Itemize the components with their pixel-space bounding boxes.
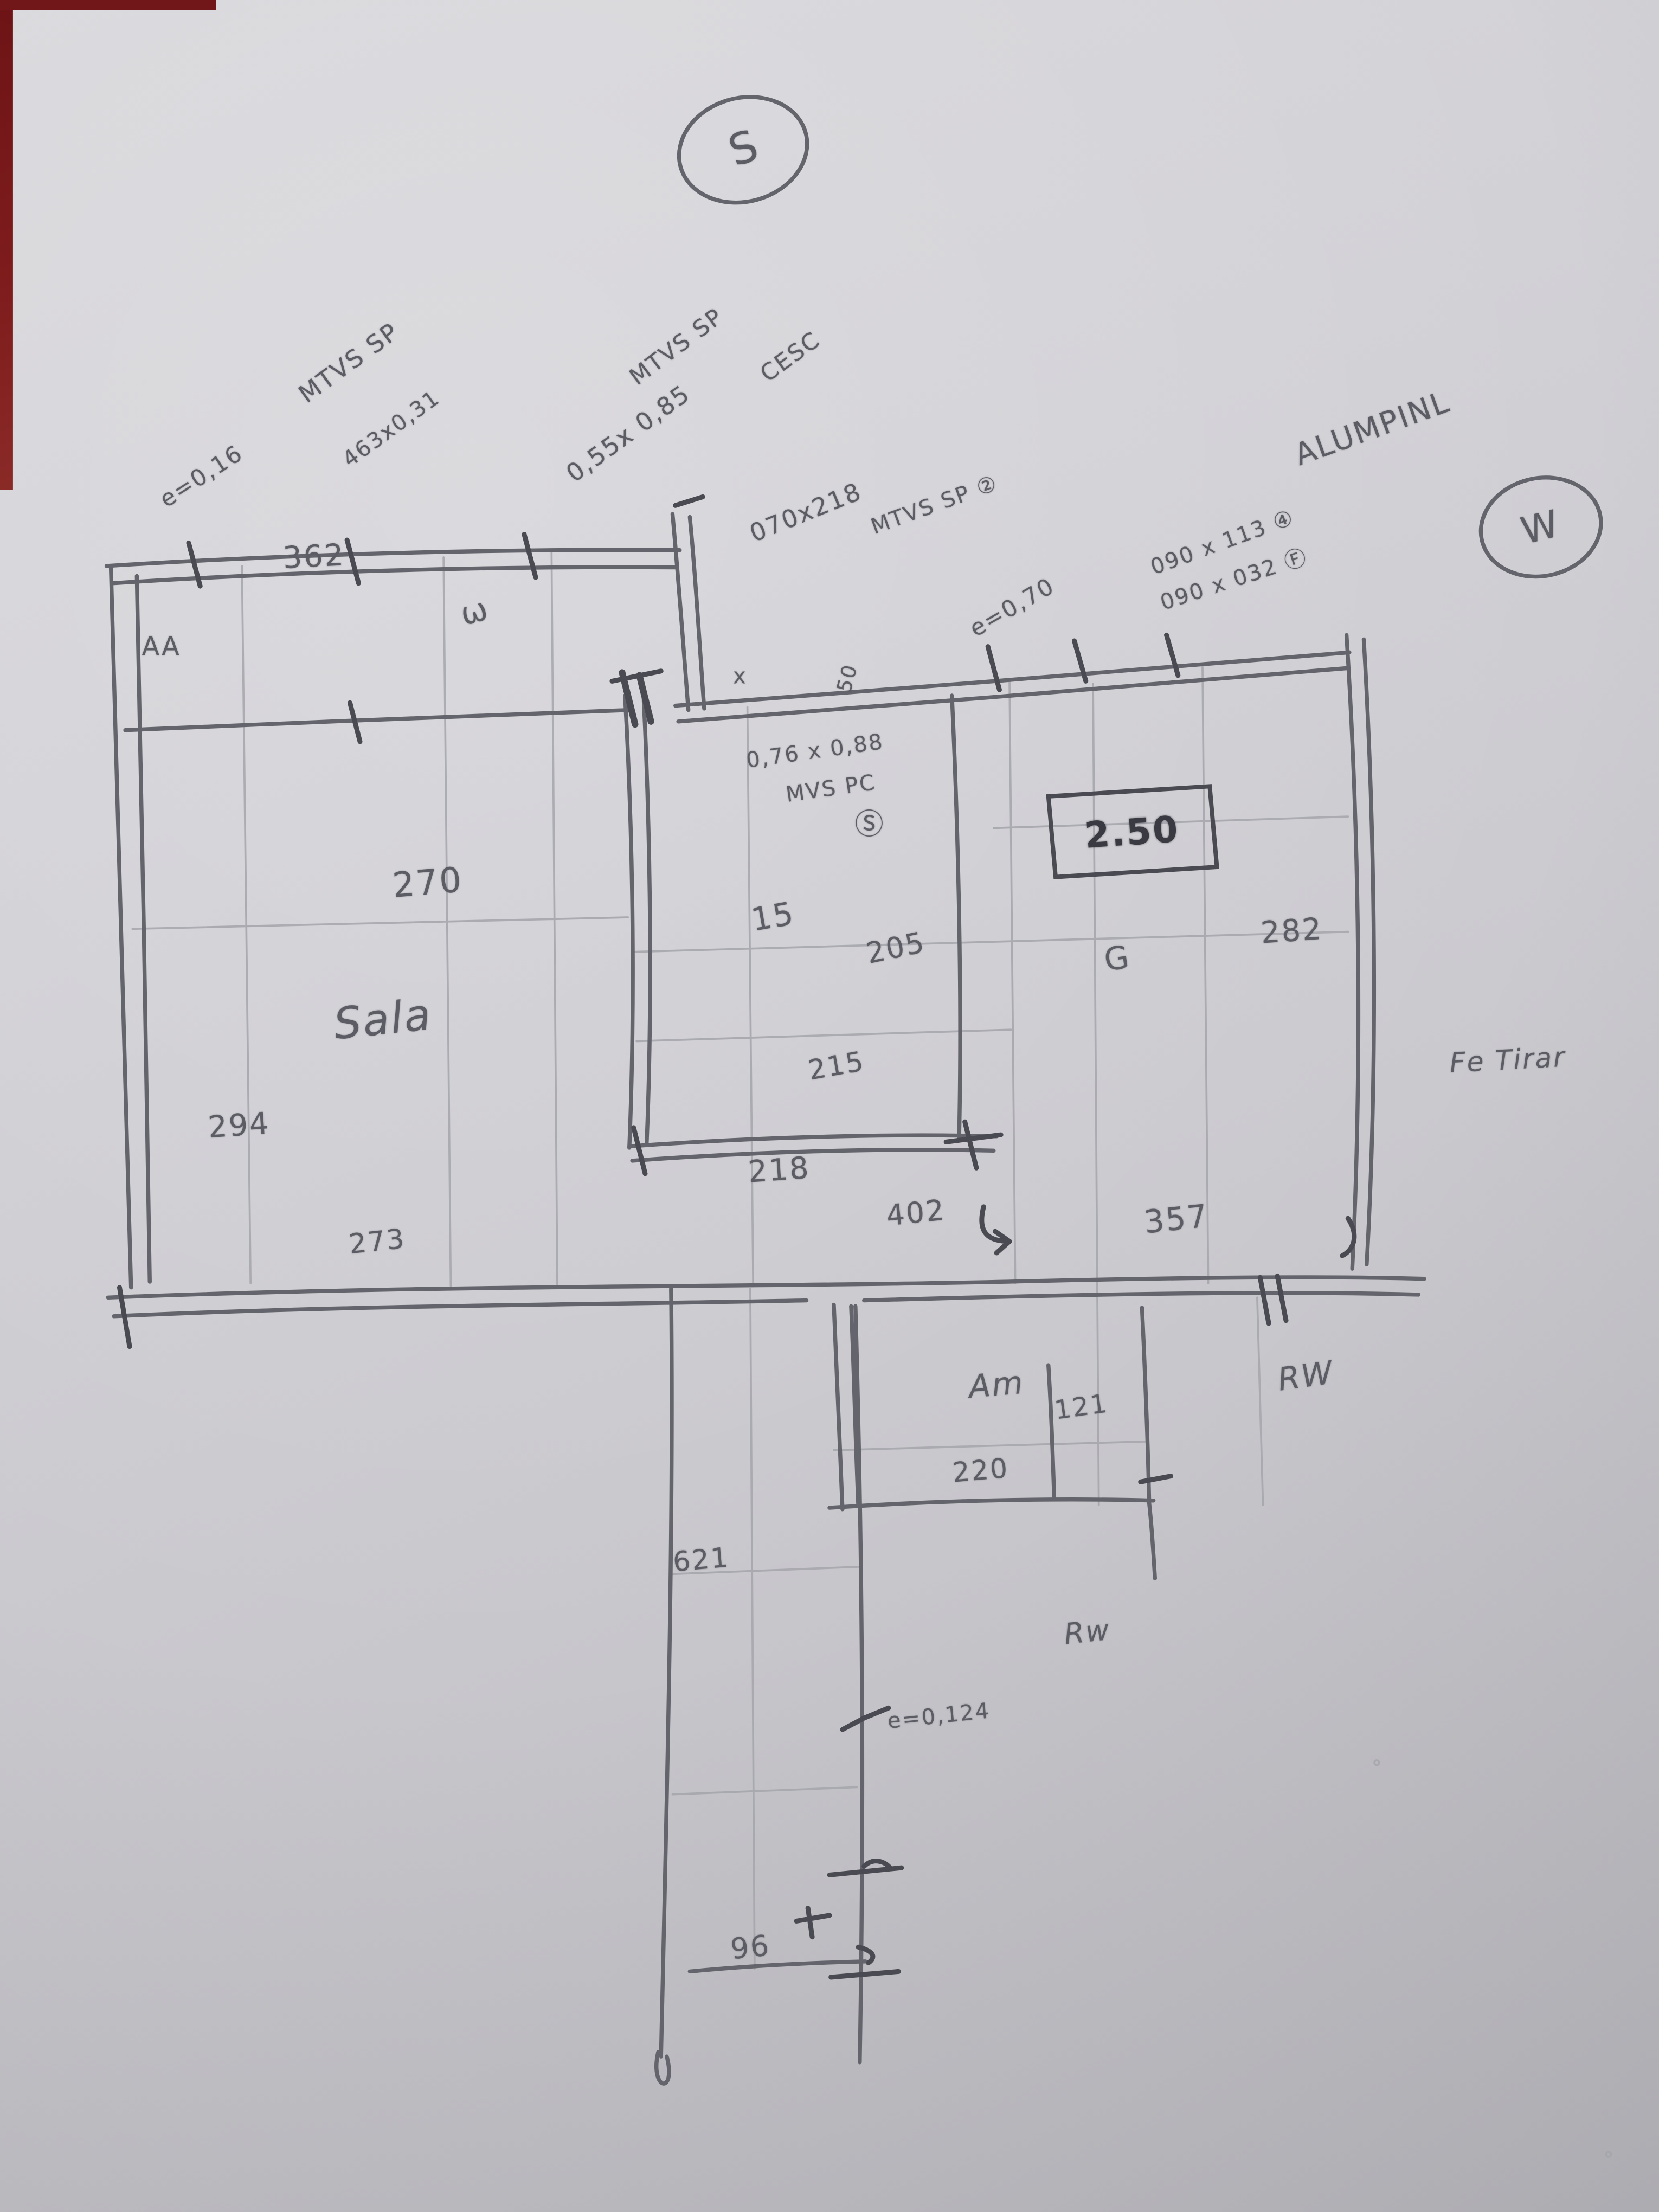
label-room-am: Am — [968, 1368, 1026, 1405]
label-dim-294: 294 — [207, 1109, 271, 1143]
label-dim-402: 402 — [885, 1195, 947, 1230]
label-note-rw-2: Rw — [1063, 1615, 1112, 1649]
label-note-076x088: 0,76 x 0,88 — [745, 731, 885, 772]
label-note-mtvs-sp-1: MTVS SP — [295, 320, 404, 409]
label-room-sala: Sala — [332, 994, 434, 1047]
label-dim-621: 621 — [672, 1545, 730, 1577]
label-dim-121: 121 — [1053, 1392, 1110, 1425]
label-note-463x031: 463x0,31 — [339, 387, 444, 471]
label-dim-362: 362 — [282, 541, 345, 574]
label-mark-x: x — [733, 666, 747, 688]
label-label-aa: AA — [142, 635, 181, 661]
label-dim-218: 218 — [747, 1154, 811, 1188]
label-dim-270: 270 — [391, 863, 465, 903]
label-note-055x085: 0,55x 0,85 — [563, 382, 696, 487]
label-note-070x218: 070x218 — [747, 481, 866, 548]
label-dim-205: 205 — [864, 927, 928, 968]
label-dim-250-boxed: 2.50 — [1083, 811, 1180, 853]
label-note-e-016: e=0,16 — [156, 441, 247, 511]
label-dim-96: 96 — [729, 1931, 771, 1963]
label-dim-50: 50 — [835, 662, 862, 695]
label-note-mtvs-sp-2: MTVS SP — [626, 305, 728, 389]
label-note-fe-tirar: Fe Tirar — [1449, 1045, 1567, 1078]
label-west-marker-letter: W — [1517, 506, 1564, 551]
label-dim-215: 215 — [807, 1049, 867, 1085]
label-note-alumpinl: ALUMPINL — [1291, 387, 1454, 471]
label-dim-220: 220 — [951, 1456, 1010, 1488]
label-dim-15: 15 — [749, 899, 798, 938]
label-note-e-070: e=0,70 — [966, 574, 1058, 641]
label-dim-282: 282 — [1260, 915, 1324, 949]
label-dim-273: 273 — [348, 1226, 407, 1259]
paper-sheet: SWMTVS SPe=0,16463x0,31MTVS SP0,55x 0,85… — [0, 0, 1659, 2212]
label-dim-357: 357 — [1143, 1202, 1211, 1240]
label-note-e-0124: e=0,124 — [886, 1700, 992, 1733]
label-mark-s-circled: Ⓢ — [854, 809, 885, 838]
label-note-rw-1: RW — [1276, 1359, 1336, 1398]
label-note-mtvs-sp-3: MTVS SP ② — [869, 473, 1001, 538]
label-mark-g: G — [1102, 943, 1133, 978]
photo-of-sketch: SWMTVS SPe=0,16463x0,31MTVS SP0,55x 0,85… — [0, 0, 1659, 2212]
label-mark-omega: ω — [458, 595, 493, 633]
label-note-mvs-pc: MVS PC — [785, 772, 877, 806]
label-note-cesc: CESC — [757, 328, 825, 386]
label-south-marker-letter: S — [724, 125, 765, 175]
labels-layer: SWMTVS SPe=0,16463x0,31MTVS SP0,55x 0,85… — [0, 0, 1659, 2212]
